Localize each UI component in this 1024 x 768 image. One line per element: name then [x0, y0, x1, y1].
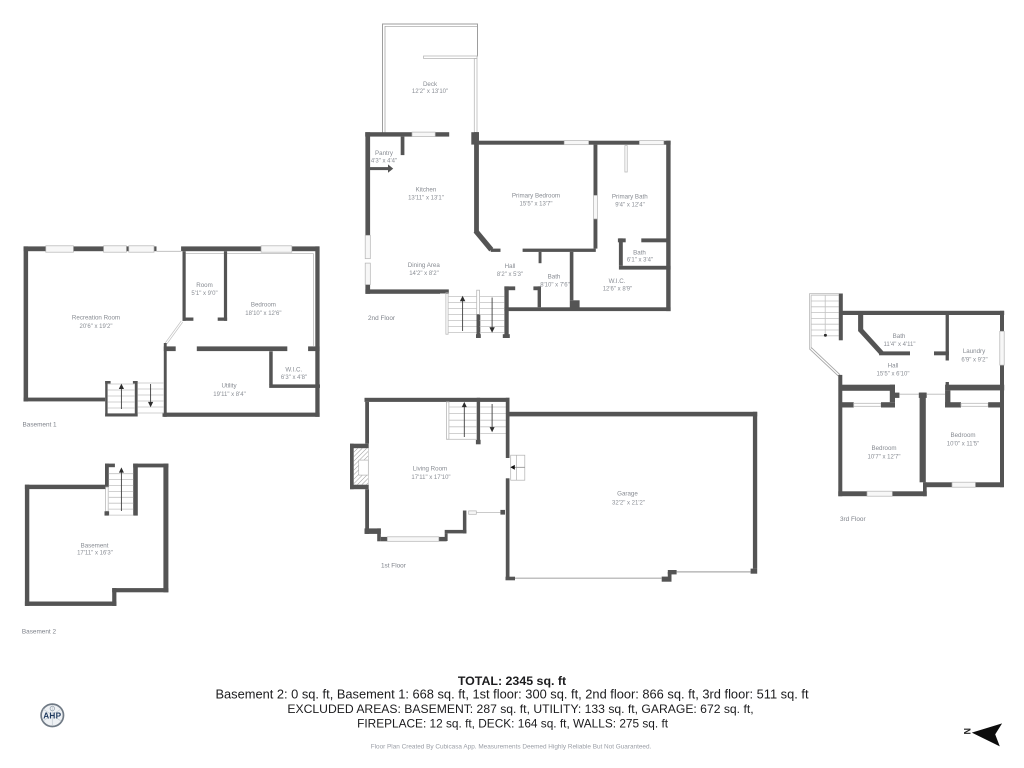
svg-text:4'3" x 4'4": 4'3" x 4'4" [371, 159, 397, 165]
svg-text:1st Floor: 1st Floor [381, 563, 407, 570]
svg-text:Laundry: Laundry [963, 348, 986, 355]
svg-text:Dining Area: Dining Area [408, 262, 441, 269]
svg-text:AHP: AHP [43, 712, 61, 721]
svg-text:15'5" x 13'7": 15'5" x 13'7" [520, 202, 553, 208]
svg-text:8'2" x 5'3": 8'2" x 5'3" [497, 272, 523, 278]
svg-text:32'2" x 21'2": 32'2" x 21'2" [612, 501, 645, 507]
svg-text:Hall: Hall [888, 363, 899, 370]
svg-text:Utility: Utility [221, 383, 237, 390]
svg-text:13'11" x 13'1": 13'11" x 13'1" [408, 196, 444, 202]
svg-text:W.I.C.: W.I.C. [609, 278, 626, 285]
svg-text:6'3" x 4'8": 6'3" x 4'8" [281, 375, 307, 381]
svg-text:Room: Room [196, 282, 213, 289]
svg-text:Bedroom: Bedroom [950, 432, 975, 439]
svg-text:12'2" x 13'10": 12'2" x 13'10" [412, 89, 448, 95]
svg-text:Garage: Garage [617, 491, 638, 498]
svg-text:Recreation Room: Recreation Room [72, 315, 120, 322]
svg-text:Bath: Bath [633, 250, 646, 257]
svg-text:15'5" x 6'10": 15'5" x 6'10" [877, 372, 910, 378]
svg-text:Basement: Basement [81, 543, 109, 550]
svg-text:8'10" x 7'6": 8'10" x 7'6" [540, 282, 570, 288]
svg-text:9'4" x 12'4": 9'4" x 12'4" [615, 203, 645, 209]
svg-text:17'11" x 16'3": 17'11" x 16'3" [77, 551, 113, 557]
svg-text:Basement 1: Basement 1 [23, 422, 58, 429]
svg-text:18'10" x 12'6": 18'10" x 12'6" [245, 311, 281, 317]
svg-text:Bath: Bath [893, 333, 906, 340]
svg-text:Primary Bath: Primary Bath [612, 194, 648, 201]
svg-text:19'11" x 8'4": 19'11" x 8'4" [213, 392, 245, 398]
svg-text:Floor Plan Created By Cubicasa: Floor Plan Created By Cubicasa App. Meas… [371, 744, 652, 751]
svg-text:EXCLUDED AREAS: BASEMENT: 287: EXCLUDED AREAS: BASEMENT: 287 sq. ft, UT… [287, 702, 753, 716]
svg-text:Hall: Hall [505, 263, 516, 270]
svg-text:Bath: Bath [548, 274, 561, 281]
svg-text:17'11" x 17'10": 17'11" x 17'10" [411, 475, 450, 481]
svg-text:5'1" x 9'0": 5'1" x 9'0" [191, 291, 217, 297]
svg-text:12'6" x 8'9": 12'6" x 8'9" [603, 287, 633, 293]
svg-text:Basement 2: 0 sq. ft, Basement: Basement 2: 0 sq. ft, Basement 1: 668 sq… [215, 687, 808, 702]
svg-text:Deck: Deck [423, 81, 438, 88]
svg-text:Basement 2: Basement 2 [22, 629, 57, 636]
svg-text:N: N [962, 728, 972, 735]
svg-text:3rd Floor: 3rd Floor [840, 516, 866, 523]
svg-text:Pantry: Pantry [375, 150, 394, 157]
svg-text:11'4" x 4'11": 11'4" x 4'11" [883, 342, 915, 348]
svg-text:2nd Floor: 2nd Floor [368, 315, 396, 322]
svg-text:Bedroom: Bedroom [251, 302, 276, 309]
svg-text:6'1" x 3'4": 6'1" x 3'4" [627, 258, 653, 264]
svg-text:10'7" x 12'7": 10'7" x 12'7" [868, 455, 901, 461]
svg-text:6'9" x 9'2": 6'9" x 9'2" [961, 358, 987, 364]
svg-text:Kitchen: Kitchen [416, 187, 437, 194]
svg-text:W.I.C.: W.I.C. [285, 367, 302, 374]
svg-text:Living Room: Living Room [413, 466, 447, 473]
svg-text:20'6" x 19'2": 20'6" x 19'2" [80, 324, 113, 330]
svg-text:FIREPLACE: 12 sq. ft, DECK: 16: FIREPLACE: 12 sq. ft, DECK: 164 sq. ft, … [357, 717, 669, 731]
svg-text:Bedroom: Bedroom [871, 445, 896, 452]
svg-text:14'2" x 8'2": 14'2" x 8'2" [409, 271, 439, 277]
svg-text:Primary Bedroom: Primary Bedroom [512, 193, 560, 200]
svg-text:10'0" x 11'5": 10'0" x 11'5" [947, 442, 979, 448]
